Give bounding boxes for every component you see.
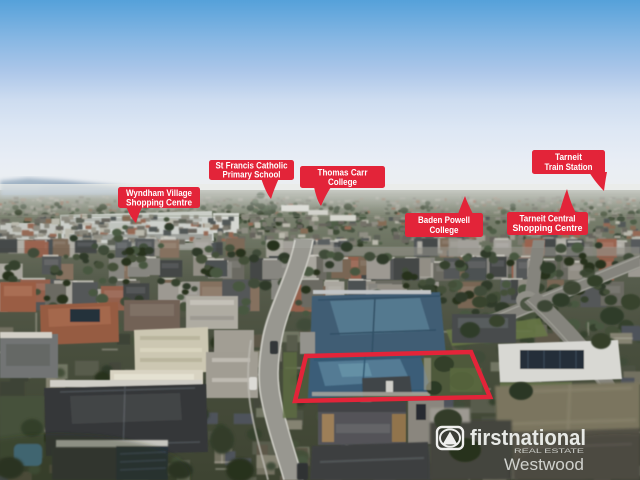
svg-text:Train Station: Train Station xyxy=(545,162,593,172)
svg-text:REAL ESTATE: REAL ESTATE xyxy=(514,448,585,455)
svg-text:Thomas Carr: Thomas Carr xyxy=(318,168,368,178)
svg-text:Primary School: Primary School xyxy=(223,170,281,180)
svg-text:Wyndham Village: Wyndham Village xyxy=(126,188,192,198)
svg-text:firstnational: firstnational xyxy=(470,425,586,450)
svg-text:Westwood: Westwood xyxy=(504,456,584,474)
svg-text:Shopping Centre: Shopping Centre xyxy=(126,198,192,208)
svg-text:College: College xyxy=(328,177,357,187)
svg-text:College: College xyxy=(430,225,459,235)
svg-text:Shopping Centre: Shopping Centre xyxy=(513,223,583,233)
svg-text:Baden Powell: Baden Powell xyxy=(418,215,470,225)
svg-text:Tarneit Central: Tarneit Central xyxy=(520,214,576,224)
svg-text:Tarneit: Tarneit xyxy=(555,152,582,162)
